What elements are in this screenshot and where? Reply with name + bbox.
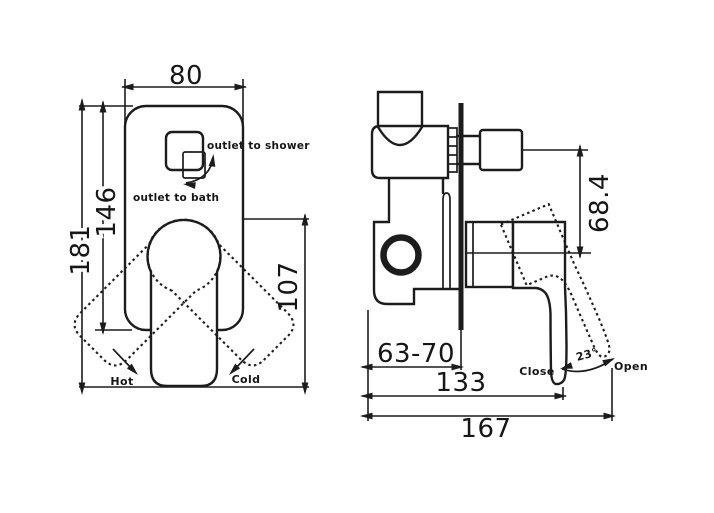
dim-167-text: 167 xyxy=(460,414,511,444)
handle-side-closed xyxy=(513,222,567,384)
riser-pipe xyxy=(378,92,422,126)
dim-wall-depth: 63-70 xyxy=(360,339,464,370)
supply-inlet-ring xyxy=(384,238,419,273)
dim-146-text: 146 xyxy=(92,186,122,237)
hot-pointer-arrow xyxy=(113,349,140,377)
mixer-technical-drawing: 80 181 146 107 outlet to xyxy=(0,0,714,513)
diverter-direction-arrow xyxy=(183,154,217,189)
dim-107-text: 107 xyxy=(274,261,304,312)
flange xyxy=(448,128,457,172)
front-view: 80 181 146 107 outlet to xyxy=(66,61,310,395)
dim-plate-width: 80 xyxy=(121,61,247,128)
dim-80-text: 80 xyxy=(169,61,203,91)
hot-label: Hot xyxy=(110,375,133,388)
dim-overall-height: 181 xyxy=(66,98,133,395)
mounting-bracket-tab xyxy=(443,193,450,290)
dim-68-4-text: 68.4 xyxy=(585,173,615,233)
drawing-canvas: 80 181 146 107 outlet to xyxy=(0,0,714,513)
outlet-to-shower-label: outlet to shower xyxy=(207,140,310,152)
dim-handle-length: 107 xyxy=(243,213,309,395)
dim-overall-length: 167 xyxy=(360,368,616,444)
diverter-button-inner xyxy=(183,152,205,178)
cold-label: Cold xyxy=(232,373,261,386)
open-label: Open xyxy=(614,360,648,373)
swing-angle-annotation: 23° Close Open xyxy=(519,345,648,378)
dim-133-text: 133 xyxy=(435,368,486,398)
angle-23-text: 23° xyxy=(575,345,600,364)
close-label: Close xyxy=(519,365,554,378)
side-view: 68.4 63-70 133 167 xyxy=(360,92,648,444)
outlet-to-bath-label: outlet to bath xyxy=(133,192,219,204)
dim-63-70-text: 63-70 xyxy=(377,339,455,369)
diverter-button-outer xyxy=(166,132,203,170)
diverter-knob xyxy=(480,130,522,170)
